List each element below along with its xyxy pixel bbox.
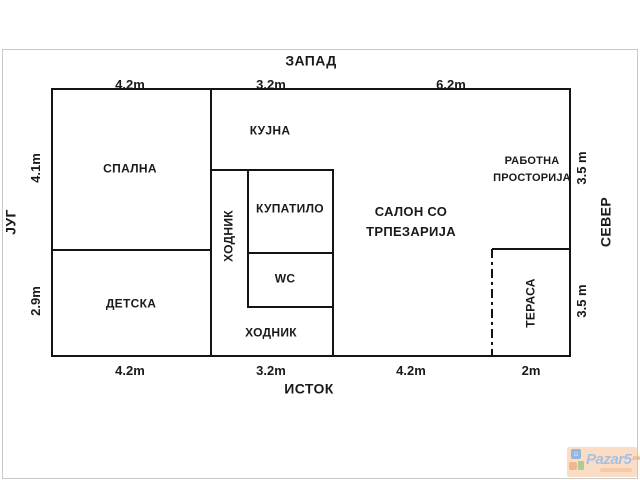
room-hodnik-vertical-label: ХОДНИК [222,210,235,262]
floorplan-screenshot: ЗАПАД ИСТОК ЈУГ СЕВЕР 4.2m 3.2m 6.2m 4.2… [0,0,640,480]
terasa-dashdot-line [491,249,493,356]
dim-bottom-2: 3.2m [256,364,286,378]
wall-outer-top [51,88,571,90]
compass-east-label: ИСТОК [284,381,333,396]
dim-bottom-3: 4.2m [396,364,426,378]
dim-top-3: 6.2m [436,78,466,92]
room-salon-label: САЛОН СО ТРПЕЗАРИЈА [366,202,456,242]
wall-outer-right [569,88,571,357]
room-salon-line2: ТРПЕЗАРИЈА [366,222,456,242]
wall-kupatilo-wc [247,252,334,254]
wall-bath-right [332,169,334,357]
wall-outer-bottom [51,355,571,357]
dim-bottom-4: 2m [522,364,541,378]
room-detska-label: ДЕТСКА [106,297,156,310]
wall-terasa-top [492,248,571,250]
dim-bottom-1: 4.2m [115,364,145,378]
photo-frame [2,49,638,479]
room-rabotna-line2: ПРОСТОРИЈА [493,170,571,187]
compass-west-label: ЗАПАД [285,53,336,68]
dim-right-1: 3.5 m [575,151,589,184]
lock-icon [578,461,584,470]
pazar5-tld-label: .mk [631,456,640,462]
room-spalna-label: СПАЛНА [103,162,157,175]
house-icon: ⌂ [571,449,581,459]
room-wc-label: WC [275,272,296,285]
room-rabotna-line1: РАБОТНА [493,153,571,170]
wall-outer-left [51,88,53,357]
wall-spalna-detska [51,249,212,251]
dim-right-2: 3.5 m [575,284,589,317]
room-rabotna-label: РАБОТНА ПРОСТОРИЈА [493,153,571,187]
pazar5-watermark: ⌂ Pazar5.mk [567,447,637,477]
wall-kujna-bottom [210,169,334,171]
pazar5-brand-label: Pazar5.mk [586,452,640,467]
wall-wc-bottom [247,306,334,308]
dim-top-1: 4.2m [115,78,145,92]
pazar5-tagline-blur [600,468,632,472]
pazar5-brand-text: Pazar5 [586,451,631,468]
wall-spalna-right [210,88,212,357]
pazar5-text-block: Pazar5.mk [586,452,640,472]
dim-top-2: 3.2m [256,78,286,92]
room-terasa-label: ТЕРАСА [524,278,537,327]
dim-left-2: 2.9m [29,286,43,316]
wall-bath-left [247,169,249,308]
room-hodnik-bottom-label: ХОДНИК [245,326,297,339]
compass-north-label: СЕВЕР [598,197,613,247]
pazar5-icon-cluster: ⌂ [569,449,586,475]
room-kupatilo-label: КУПАТИЛО [256,202,324,215]
cart-icon [569,462,577,470]
dim-left-1: 4.1m [29,153,43,183]
compass-south-label: ЈУГ [3,209,18,235]
room-salon-line1: САЛОН СО [366,202,456,222]
room-kujna-label: КУЈНА [250,124,291,137]
